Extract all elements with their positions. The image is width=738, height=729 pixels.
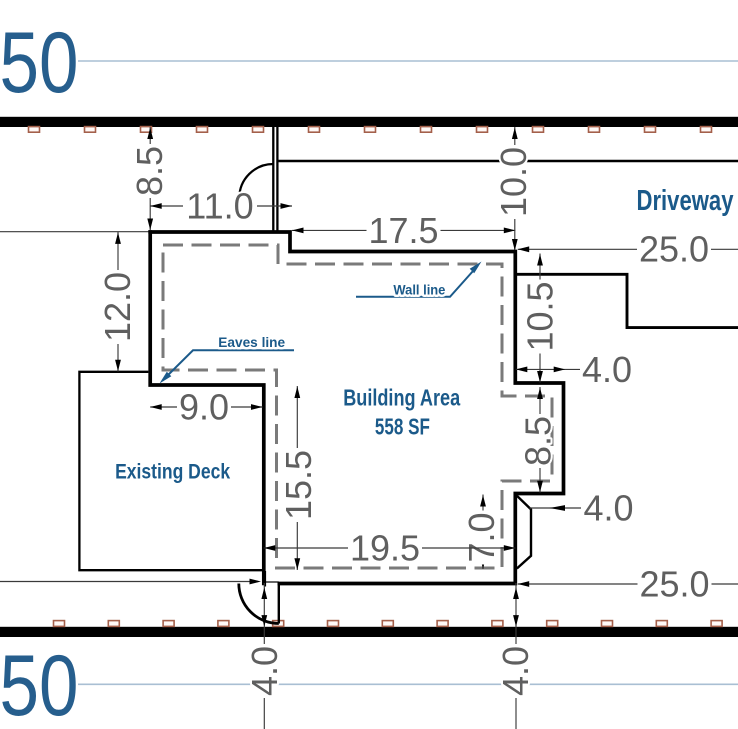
svg-text:Eaves line: Eaves line [218, 335, 285, 350]
svg-text:11.0: 11.0 [186, 185, 253, 226]
svg-text:558 SF: 558 SF [375, 413, 430, 439]
svg-text:Wall line: Wall line [393, 282, 445, 297]
svg-text:Existing Deck: Existing Deck [115, 460, 230, 483]
svg-text:50: 50 [0, 15, 79, 111]
svg-text:Driveway: Driveway [637, 185, 734, 217]
svg-text:15.5: 15.5 [278, 450, 319, 520]
svg-text:50: 50 [0, 638, 79, 729]
svg-text:10.5: 10.5 [519, 281, 560, 351]
svg-text:7.0: 7.0 [461, 512, 502, 562]
svg-text:25.0: 25.0 [639, 229, 709, 270]
svg-text:8.5: 8.5 [129, 146, 170, 196]
svg-text:17.5: 17.5 [368, 210, 438, 251]
svg-text:19.5: 19.5 [350, 527, 420, 568]
svg-text:10.0: 10.0 [493, 147, 534, 217]
svg-text:25.0: 25.0 [639, 563, 709, 604]
svg-text:12.0: 12.0 [97, 272, 138, 342]
svg-text:4.0: 4.0 [495, 646, 536, 696]
svg-text:Building Area: Building Area [343, 384, 461, 410]
svg-text:4.0: 4.0 [582, 349, 632, 390]
svg-text:4.0: 4.0 [583, 487, 633, 528]
svg-text:8.5: 8.5 [517, 416, 558, 466]
svg-text:9.0: 9.0 [179, 386, 229, 427]
svg-text:4.0: 4.0 [244, 646, 285, 696]
